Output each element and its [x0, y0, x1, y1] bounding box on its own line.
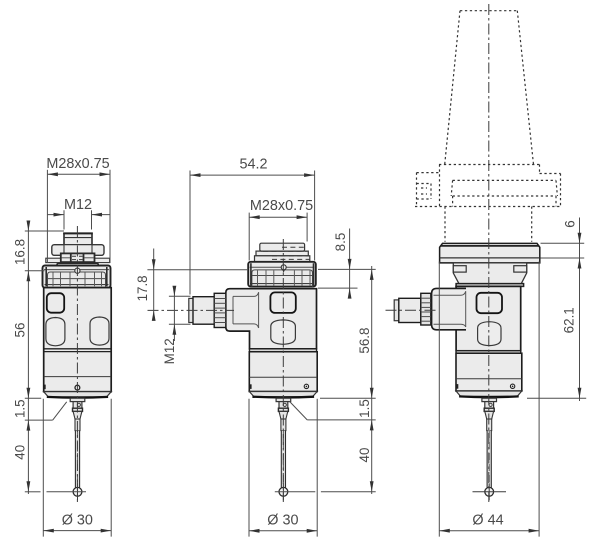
svg-text:17.8: 17.8 [135, 275, 150, 301]
svg-text:56: 56 [12, 323, 27, 338]
svg-text:40: 40 [357, 448, 372, 463]
svg-text:Ø 30: Ø 30 [62, 513, 93, 529]
svg-text:16.8: 16.8 [12, 239, 27, 265]
svg-text:56.8: 56.8 [357, 328, 372, 354]
svg-text:Ø 30: Ø 30 [267, 513, 298, 529]
svg-text:1.5: 1.5 [12, 399, 27, 418]
svg-text:1.5: 1.5 [357, 399, 372, 418]
svg-text:M28x0.75: M28x0.75 [46, 156, 109, 172]
svg-text:62.1: 62.1 [561, 307, 576, 333]
svg-text:54.2: 54.2 [239, 156, 267, 172]
svg-text:8.5: 8.5 [333, 233, 348, 252]
svg-text:Ø 44: Ø 44 [472, 512, 503, 528]
svg-text:40: 40 [12, 445, 27, 460]
svg-text:6: 6 [562, 220, 577, 227]
svg-text:M28x0.75: M28x0.75 [250, 198, 313, 214]
svg-text:M12: M12 [162, 338, 177, 364]
svg-text:M12: M12 [64, 197, 92, 213]
